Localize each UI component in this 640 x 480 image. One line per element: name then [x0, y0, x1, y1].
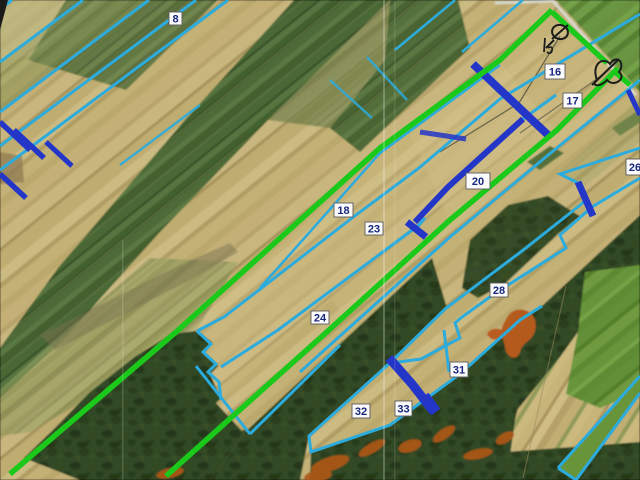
svg-text:17: 17: [566, 96, 578, 108]
svg-text:31: 31: [453, 365, 465, 377]
svg-text:32: 32: [355, 406, 367, 418]
svg-text:18: 18: [337, 205, 349, 217]
svg-text:20: 20: [472, 176, 484, 188]
svg-text:33: 33: [397, 404, 409, 416]
svg-text:23: 23: [368, 224, 380, 236]
svg-text:8: 8: [172, 14, 178, 26]
svg-text:28: 28: [493, 285, 505, 297]
svg-text:26: 26: [629, 162, 640, 174]
svg-text:24: 24: [314, 313, 327, 325]
svg-text:16: 16: [549, 67, 561, 79]
